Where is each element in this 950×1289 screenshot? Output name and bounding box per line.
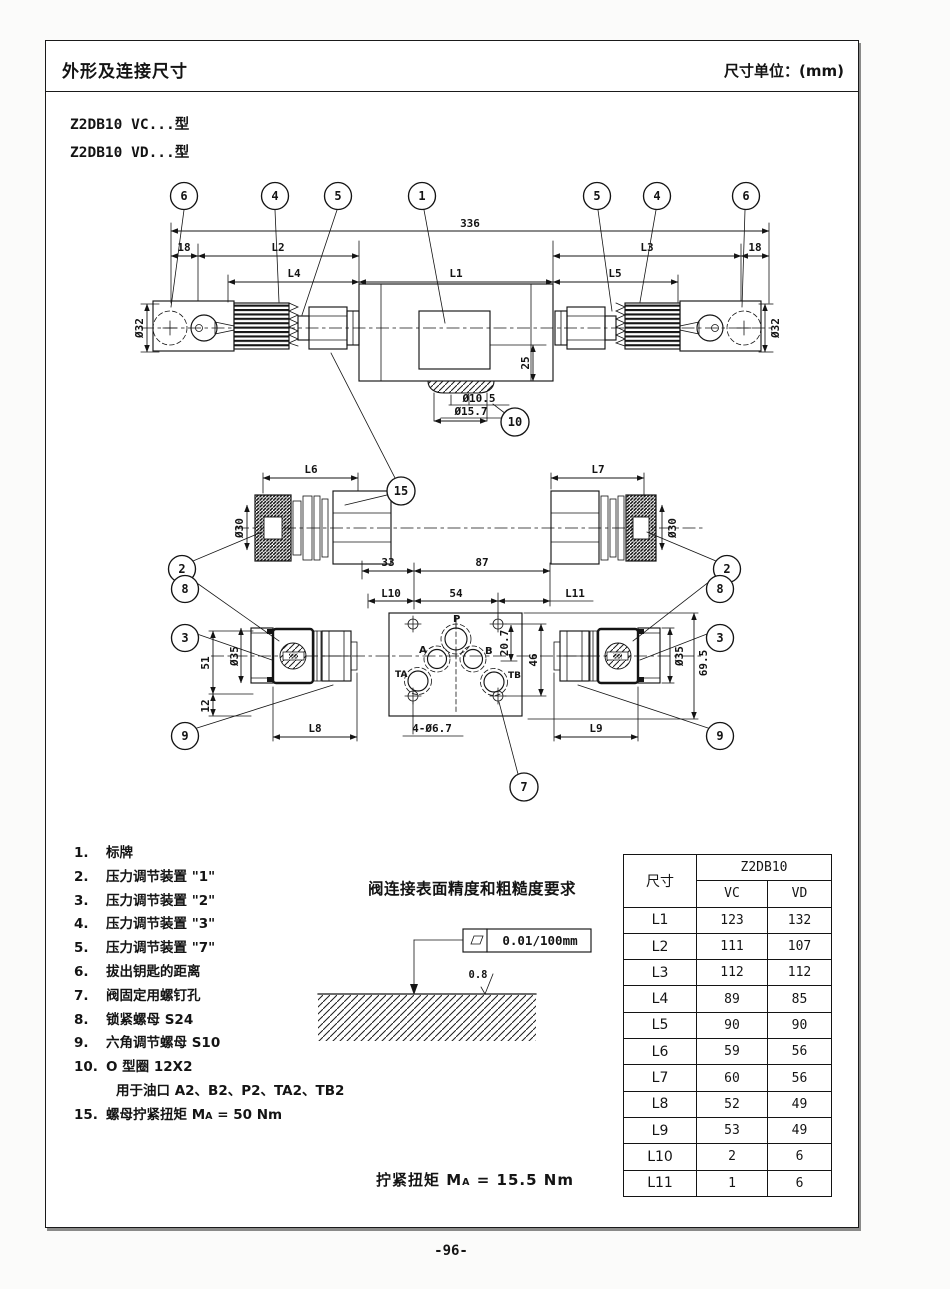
- dim-dia35-left: Ø35: [228, 646, 241, 667]
- balloon-10: 10: [501, 408, 529, 436]
- svg-text:3: 3: [181, 631, 188, 645]
- svg-text:4: 4: [271, 189, 278, 203]
- svg-text:B: B: [485, 646, 493, 657]
- table-header-dim: 尺寸: [624, 855, 697, 908]
- table-row: L95349: [624, 1117, 832, 1143]
- list-item: 8.锁紧螺母 S24: [74, 1009, 344, 1033]
- balloon-3-right: 3: [707, 625, 734, 652]
- balloon-3-left: 3: [172, 625, 199, 652]
- list-item: 3.压力调节装置 "2": [74, 890, 344, 914]
- balloon-9-left: 9: [172, 723, 199, 750]
- model-labels: Z2DB10 VC...型 Z2DB10 VD...型: [70, 111, 189, 167]
- table-row: L1123132: [624, 907, 832, 933]
- flatness-icon: [471, 936, 483, 944]
- dim-L7: L7: [591, 463, 604, 476]
- table-row: L76056: [624, 1065, 832, 1091]
- nameplate: [419, 311, 490, 369]
- dim-holes: 4-Ø6.7: [412, 722, 452, 735]
- table-row: L2111107: [624, 933, 832, 959]
- unit-label: 尺寸单位：(mm): [724, 60, 844, 81]
- list-item: 1.标牌: [74, 842, 344, 866]
- list-item: 5.压力调节装置 "7": [74, 937, 344, 961]
- svg-text:7: 7: [520, 780, 527, 794]
- dim-207: 20.7: [498, 630, 511, 657]
- list-item: 9.六角调节螺母 S10: [74, 1032, 344, 1056]
- svg-text:A: A: [419, 645, 427, 656]
- dim-L8: L8: [308, 722, 321, 735]
- parts-list: 1.标牌 2.压力调节装置 "1" 3.压力调节装置 "2" 4.压力调节装置 …: [74, 842, 344, 1129]
- table-row: L1026: [624, 1144, 832, 1170]
- svg-text:8: 8: [181, 582, 188, 596]
- surface-requirement-title: 阀连接表面精度和粗糙度要求: [368, 877, 576, 899]
- dim-25: 25: [519, 356, 532, 369]
- table-header-model: Z2DB10: [697, 855, 832, 881]
- list-item-continuation: 用于油口 A2、B2、P2、TA2、TB2: [74, 1080, 344, 1104]
- svg-text:1: 1: [418, 189, 425, 203]
- page-number: -96-: [45, 1243, 857, 1259]
- svg-text:TB: TB: [508, 671, 521, 681]
- table-row: L48985: [624, 986, 832, 1012]
- balloon-5-left: 5: [325, 183, 352, 210]
- dim-dia35-right: Ø35: [673, 646, 686, 667]
- surface-finish-diagram: 0.01/100mm 0.8: [318, 929, 591, 1041]
- roughness-value: 0.8: [469, 969, 488, 981]
- balloon-8-left: 8: [172, 576, 199, 603]
- dim-dia32-left: Ø32: [133, 318, 146, 339]
- dim-dia30-right: Ø30: [666, 518, 679, 539]
- dim-L6: L6: [304, 463, 318, 476]
- svg-text:9: 9: [181, 729, 188, 743]
- list-item: 7.阀固定用螺钉孔: [74, 985, 344, 1009]
- balloon-6-left: 6: [171, 183, 198, 210]
- balloon-7: 7: [510, 773, 538, 801]
- dim-46: 46: [527, 653, 540, 667]
- table-row: L59090: [624, 1012, 832, 1038]
- svg-text:15: 15: [394, 484, 408, 498]
- dim-L4: L4: [287, 267, 301, 280]
- table-row: L85249: [624, 1091, 832, 1117]
- table-header-vd: VD: [768, 881, 832, 907]
- svg-text:8: 8: [716, 582, 723, 596]
- balloon-8-right: 8: [707, 576, 734, 603]
- bottom-view: 33 87 L10 54 L11: [199, 556, 710, 741]
- page-title: 外形及连接尺寸: [62, 57, 188, 82]
- svg-text:6: 6: [742, 189, 749, 203]
- svg-text:2: 2: [723, 562, 730, 576]
- svg-text:TA: TA: [395, 670, 407, 680]
- svg-text:5: 5: [593, 189, 600, 203]
- balloon-5-right: 5: [584, 183, 611, 210]
- balloon-9-right: 9: [707, 723, 734, 750]
- port-B: B: [460, 646, 493, 672]
- table-header-vc: VC: [697, 881, 768, 907]
- svg-text:4: 4: [653, 189, 660, 203]
- port-A: A: [419, 645, 450, 672]
- balloon-4-right: 4: [644, 183, 671, 210]
- svg-text:P: P: [453, 614, 460, 625]
- list-item: 10.O 型圈 12X2: [74, 1056, 344, 1080]
- hatched-surface: [318, 995, 536, 1041]
- table-row: L65956: [624, 1039, 832, 1065]
- dim-L2: L2: [271, 241, 284, 254]
- middle-view: L6 L7 Ø30 Ø30: [233, 463, 706, 564]
- dim-L5: L5: [608, 267, 621, 280]
- table-row: L1116: [624, 1170, 832, 1196]
- dim-dia105: Ø10.5: [461, 392, 495, 405]
- model-vc: Z2DB10 VC...型: [70, 111, 189, 139]
- header-divider: [46, 91, 858, 92]
- dim-54: 54: [449, 587, 463, 600]
- dim-87: 87: [475, 556, 488, 569]
- dim-dia32-right: Ø32: [769, 318, 782, 339]
- list-item: 4.压力调节装置 "3": [74, 913, 344, 937]
- dim-L1: L1: [449, 267, 463, 280]
- dim-695: 69.5: [697, 650, 710, 677]
- dim-18-right: 18: [748, 241, 761, 254]
- svg-text:3: 3: [716, 631, 723, 645]
- leader-lines: [171, 210, 745, 774]
- scanned-catalog-canvas: 336 18 L2 L3 18 L4 L1 L5: [0, 0, 950, 1289]
- dim-L9: L9: [589, 722, 602, 735]
- dim-L11: L11: [565, 587, 585, 600]
- balloon-6-right: 6: [733, 183, 760, 210]
- dim-dia157: Ø15.7: [453, 405, 487, 418]
- flatness-value: 0.01/100mm: [502, 933, 578, 948]
- list-item: 6.拔出钥匙的距离: [74, 961, 344, 985]
- svg-text:6: 6: [180, 189, 187, 203]
- tightening-torque-note: 拧紧扭矩 MA = 15.5 Nm: [376, 1169, 636, 1190]
- svg-text:9: 9: [716, 729, 723, 743]
- dimension-table: 尺寸 Z2DB10 VC VD L1123132 L2111107 L31121…: [623, 854, 832, 1197]
- dim-L3: L3: [640, 241, 653, 254]
- balloon-1: 1: [409, 183, 436, 210]
- dim-12: 12: [199, 699, 212, 712]
- dim-33: 33: [381, 556, 394, 569]
- svg-text:2: 2: [178, 562, 185, 576]
- dim-overall: 336: [460, 217, 480, 230]
- top-view: 336 18 L2 L3 18 L4 L1 L5: [133, 217, 782, 421]
- catalog-page: 336 18 L2 L3 18 L4 L1 L5: [45, 40, 859, 1228]
- balloon-4-left: 4: [262, 183, 289, 210]
- svg-text:5: 5: [334, 189, 341, 203]
- model-vd: Z2DB10 VD...型: [70, 139, 189, 167]
- dim-L10: L10: [381, 587, 401, 600]
- list-item-torque: 15.螺母拧紧扭矩 MA = 50 Nm: [74, 1104, 344, 1129]
- list-item: 2.压力调节装置 "1": [74, 866, 344, 890]
- svg-text:10: 10: [508, 415, 522, 429]
- table-row: L3112112: [624, 960, 832, 986]
- dim-dia30-left: Ø30: [233, 518, 246, 539]
- balloon-15: 15: [387, 477, 415, 505]
- dim-51: 51: [199, 656, 212, 670]
